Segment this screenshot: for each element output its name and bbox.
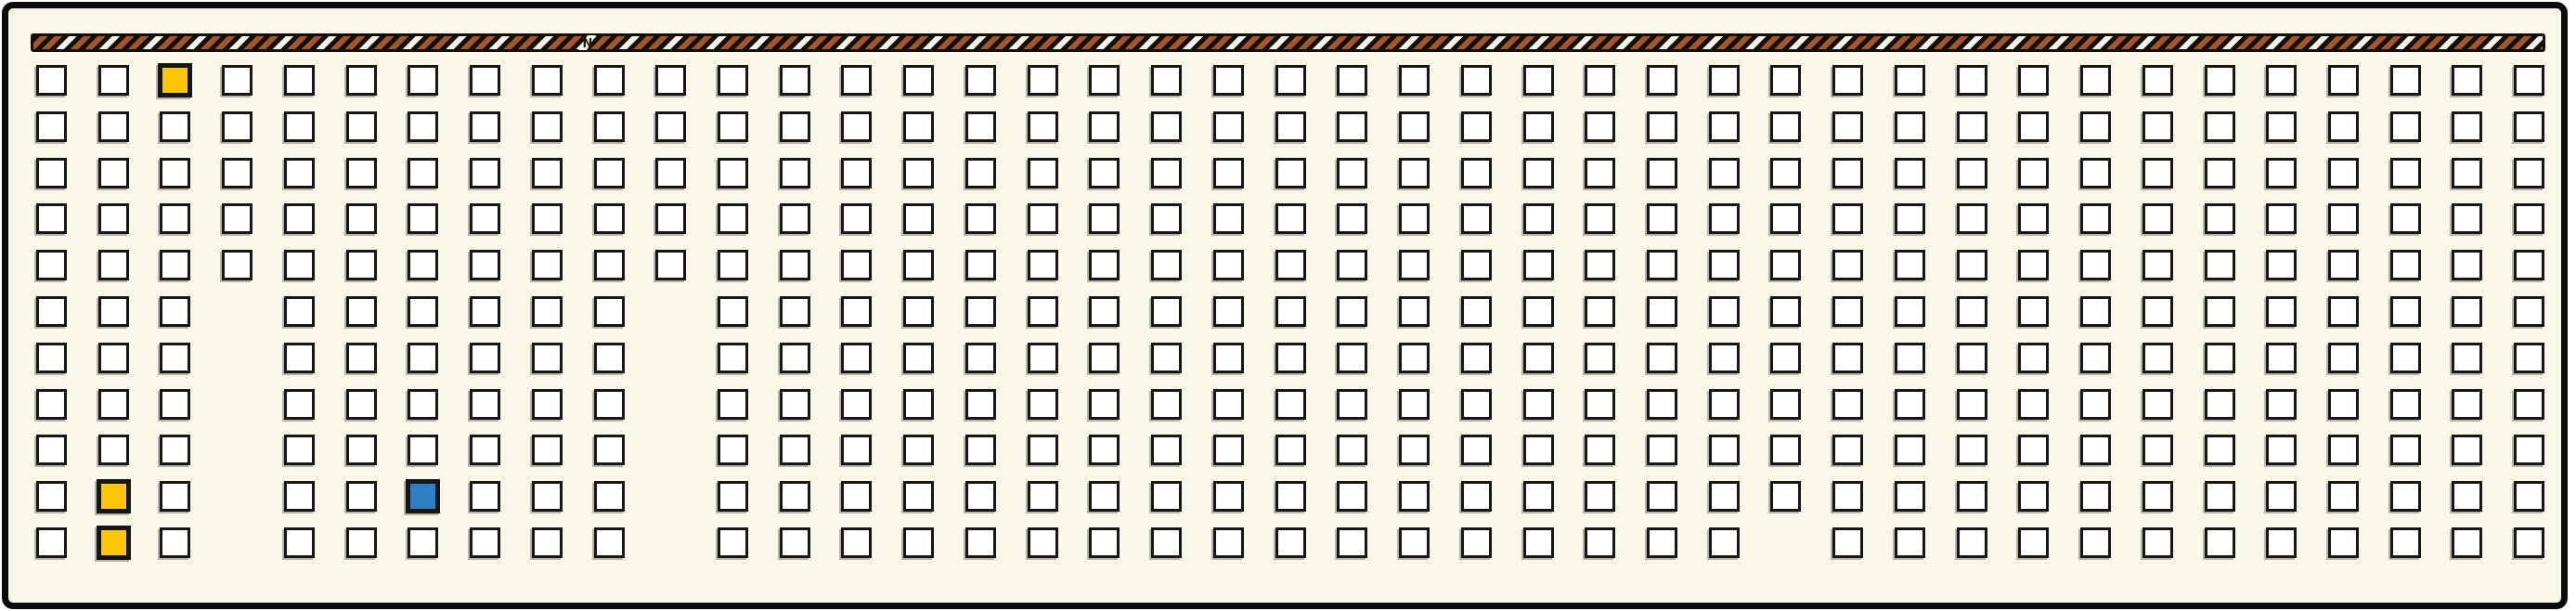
grid-cell[interactable]: [2514, 65, 2544, 96]
grid-cell[interactable]: [284, 111, 315, 142]
grid-cell[interactable]: [98, 203, 129, 234]
grid-cell[interactable]: [903, 296, 934, 327]
grid-cell[interactable]: [2514, 158, 2544, 188]
grid-cell[interactable]: [1647, 435, 1677, 465]
grid-cell[interactable]: [1647, 65, 1677, 96]
grid-cell[interactable]: [284, 65, 315, 96]
grid-cell[interactable]: [346, 250, 377, 280]
grid-cell[interactable]: [1151, 111, 1182, 142]
grid-cell[interactable]: [160, 296, 190, 327]
grid-cell[interactable]: [780, 111, 810, 142]
grid-cell[interactable]: [1399, 65, 1430, 96]
grid-cell[interactable]: [1957, 527, 1987, 558]
grid-cell[interactable]: [1709, 343, 1740, 373]
grid-cell[interactable]: [1647, 158, 1677, 188]
grid-cell[interactable]: [1770, 343, 1801, 373]
grid-cell[interactable]: [2452, 435, 2482, 465]
grid-cell[interactable]: [346, 389, 377, 420]
grid-cell[interactable]: [1832, 158, 1863, 188]
grid-cell[interactable]: [1337, 65, 1367, 96]
grid-cell[interactable]: [2514, 481, 2544, 512]
grid-cell[interactable]: [1151, 527, 1182, 558]
grid-cell[interactable]: [2080, 343, 2111, 373]
grid-cell[interactable]: [2266, 158, 2297, 188]
grid-cell[interactable]: [284, 343, 315, 373]
grid-cell[interactable]: [903, 527, 934, 558]
grid-cell[interactable]: [346, 343, 377, 373]
grid-cell[interactable]: [1647, 203, 1677, 234]
grid-cell[interactable]: [2328, 111, 2359, 142]
grid-cell[interactable]: [594, 481, 625, 512]
grid-cell[interactable]: [2080, 203, 2111, 234]
grid-cell[interactable]: [160, 481, 190, 512]
grid-cell[interactable]: [408, 343, 438, 373]
grid-cell[interactable]: [1337, 527, 1367, 558]
grid-cell[interactable]: [1709, 389, 1740, 420]
grid-cell[interactable]: [2514, 250, 2544, 280]
grid-cell[interactable]: [160, 389, 190, 420]
grid-cell[interactable]: [965, 481, 996, 512]
grid-cell[interactable]: [408, 250, 438, 280]
grid-cell[interactable]: [1151, 296, 1182, 327]
grid-cell[interactable]: [1770, 65, 1801, 96]
grid-cell[interactable]: [2018, 65, 2049, 96]
grid-cell-highlight-yellow[interactable]: [97, 526, 131, 560]
grid-cell[interactable]: [2514, 203, 2544, 234]
grid-cell[interactable]: [1895, 296, 1925, 327]
grid-cell[interactable]: [2080, 250, 2111, 280]
grid-cell[interactable]: [2452, 158, 2482, 188]
grid-cell[interactable]: [2142, 343, 2173, 373]
grid-cell[interactable]: [1957, 158, 1987, 188]
grid-cell[interactable]: [532, 435, 563, 465]
grid-cell[interactable]: [1461, 158, 1492, 188]
grid-cell[interactable]: [1151, 250, 1182, 280]
grid-cell[interactable]: [1585, 250, 1615, 280]
grid-cell[interactable]: [36, 527, 67, 558]
grid-cell-highlight-yellow[interactable]: [97, 479, 131, 513]
grid-cell[interactable]: [2142, 435, 2173, 465]
grid-cell[interactable]: [718, 389, 748, 420]
grid-cell[interactable]: [2018, 203, 2049, 234]
grid-cell[interactable]: [1895, 65, 1925, 96]
grid-cell[interactable]: [160, 203, 190, 234]
grid-cell[interactable]: [1275, 158, 1306, 188]
grid-cell[interactable]: [2390, 435, 2421, 465]
grid-cell[interactable]: [1089, 389, 1120, 420]
grid-cell[interactable]: [1895, 250, 1925, 280]
grid-cell[interactable]: [36, 389, 67, 420]
grid-cell[interactable]: [965, 203, 996, 234]
grid-cell[interactable]: [2328, 203, 2359, 234]
grid-cell[interactable]: [594, 158, 625, 188]
grid-cell[interactable]: [718, 481, 748, 512]
grid-cell[interactable]: [36, 203, 67, 234]
grid-cell[interactable]: [2142, 296, 2173, 327]
grid-cell[interactable]: [1337, 296, 1367, 327]
grid-cell[interactable]: [1151, 343, 1182, 373]
grid-cell[interactable]: [1461, 203, 1492, 234]
grid-cell[interactable]: [780, 343, 810, 373]
grid-cell[interactable]: [1647, 296, 1677, 327]
grid-cell[interactable]: [1523, 65, 1554, 96]
grid-cell[interactable]: [1461, 527, 1492, 558]
grid-cell[interactable]: [2328, 250, 2359, 280]
grid-cell[interactable]: [2452, 65, 2482, 96]
grid-cell[interactable]: [1028, 111, 1058, 142]
grid-cell[interactable]: [1089, 343, 1120, 373]
grid-cell[interactable]: [98, 65, 129, 96]
grid-cell[interactable]: [965, 389, 996, 420]
grid-cell[interactable]: [780, 527, 810, 558]
grid-cell[interactable]: [1213, 203, 1244, 234]
grid-cell[interactable]: [1028, 527, 1058, 558]
grid-cell[interactable]: [2328, 481, 2359, 512]
grid-cell[interactable]: [1832, 527, 1863, 558]
grid-cell[interactable]: [2142, 65, 2173, 96]
grid-cell[interactable]: [2205, 250, 2235, 280]
grid-cell[interactable]: [470, 203, 500, 234]
grid-cell[interactable]: [1957, 203, 1987, 234]
grid-cell[interactable]: [2514, 343, 2544, 373]
grid-cell[interactable]: [841, 527, 872, 558]
grid-cell[interactable]: [408, 158, 438, 188]
grid-cell[interactable]: [1770, 158, 1801, 188]
grid-cell[interactable]: [780, 296, 810, 327]
grid-cell[interactable]: [841, 343, 872, 373]
grid-cell[interactable]: [1832, 65, 1863, 96]
grid-cell[interactable]: [1213, 389, 1244, 420]
grid-cell[interactable]: [2390, 250, 2421, 280]
grid-cell[interactable]: [1089, 296, 1120, 327]
grid-cell[interactable]: [2080, 389, 2111, 420]
grid-cell[interactable]: [1213, 296, 1244, 327]
grid-cell[interactable]: [1399, 296, 1430, 327]
grid-cell[interactable]: [2266, 111, 2297, 142]
grid-cell[interactable]: [36, 481, 67, 512]
grid-cell[interactable]: [1585, 527, 1615, 558]
grid-cell[interactable]: [1770, 111, 1801, 142]
grid-cell[interactable]: [2328, 158, 2359, 188]
grid-cell[interactable]: [1770, 435, 1801, 465]
grid-cell[interactable]: [532, 65, 563, 96]
grid-cell[interactable]: [160, 435, 190, 465]
grid-cell[interactable]: [2080, 435, 2111, 465]
grid-cell-highlight-blue[interactable]: [406, 479, 440, 513]
grid-cell[interactable]: [532, 296, 563, 327]
grid-cell[interactable]: [2266, 296, 2297, 327]
grid-cell[interactable]: [1151, 65, 1182, 96]
grid-cell[interactable]: [1895, 389, 1925, 420]
grid-cell[interactable]: [2205, 296, 2235, 327]
grid-cell[interactable]: [1275, 527, 1306, 558]
grid-cell[interactable]: [1399, 158, 1430, 188]
grid-cell[interactable]: [470, 481, 500, 512]
grid-cell[interactable]: [346, 65, 377, 96]
grid-cell[interactable]: [594, 65, 625, 96]
grid-cell[interactable]: [1275, 343, 1306, 373]
grid-cell[interactable]: [98, 435, 129, 465]
grid-cell[interactable]: [1770, 296, 1801, 327]
grid-cell[interactable]: [903, 203, 934, 234]
grid-cell[interactable]: [1709, 435, 1740, 465]
grid-cell[interactable]: [1832, 435, 1863, 465]
grid-cell[interactable]: [780, 481, 810, 512]
grid-cell[interactable]: [160, 343, 190, 373]
grid-cell[interactable]: [2452, 296, 2482, 327]
grid-cell[interactable]: [2266, 389, 2297, 420]
grid-cell[interactable]: [2390, 111, 2421, 142]
grid-cell[interactable]: [2328, 435, 2359, 465]
grid-cell[interactable]: [284, 481, 315, 512]
grid-cell[interactable]: [1832, 250, 1863, 280]
grid-cell[interactable]: [1089, 65, 1120, 96]
grid-cell[interactable]: [2390, 343, 2421, 373]
grid-cell[interactable]: [1399, 527, 1430, 558]
grid-cell[interactable]: [532, 111, 563, 142]
grid-cell[interactable]: [903, 111, 934, 142]
grid-cell[interactable]: [36, 435, 67, 465]
grid-cell[interactable]: [1399, 435, 1430, 465]
grid-cell[interactable]: [780, 250, 810, 280]
grid-cell[interactable]: [1957, 65, 1987, 96]
grid-cell[interactable]: [2390, 158, 2421, 188]
grid-cell[interactable]: [965, 158, 996, 188]
grid-cell[interactable]: [841, 203, 872, 234]
grid-cell[interactable]: [1523, 481, 1554, 512]
grid-cell[interactable]: [841, 158, 872, 188]
grid-cell[interactable]: [408, 389, 438, 420]
grid-cell[interactable]: [2205, 389, 2235, 420]
grid-cell[interactable]: [346, 203, 377, 234]
grid-cell[interactable]: [2142, 111, 2173, 142]
grid-cell[interactable]: [2205, 111, 2235, 142]
grid-cell[interactable]: [1895, 343, 1925, 373]
grid-cell[interactable]: [780, 389, 810, 420]
grid-cell[interactable]: [1213, 158, 1244, 188]
grid-cell[interactable]: [2452, 111, 2482, 142]
grid-cell[interactable]: [160, 527, 190, 558]
grid-cell[interactable]: [284, 296, 315, 327]
grid-cell[interactable]: [903, 435, 934, 465]
grid-cell[interactable]: [1213, 65, 1244, 96]
grid-cell[interactable]: [718, 343, 748, 373]
grid-cell[interactable]: [2080, 481, 2111, 512]
grid-cell[interactable]: [965, 435, 996, 465]
grid-cell[interactable]: [1957, 389, 1987, 420]
grid-cell[interactable]: [2266, 250, 2297, 280]
grid-cell[interactable]: [1647, 389, 1677, 420]
grid-cell[interactable]: [1523, 158, 1554, 188]
grid-cell[interactable]: [222, 250, 252, 280]
grid-cell[interactable]: [470, 527, 500, 558]
grid-cell[interactable]: [1585, 65, 1615, 96]
grid-cell[interactable]: [2018, 343, 2049, 373]
grid-cell[interactable]: [2266, 343, 2297, 373]
grid-cell[interactable]: [284, 435, 315, 465]
grid-cell[interactable]: [1213, 527, 1244, 558]
grid-cell[interactable]: [2080, 527, 2111, 558]
grid-cell[interactable]: [1461, 343, 1492, 373]
grid-cell[interactable]: [2452, 527, 2482, 558]
grid-cell[interactable]: [1028, 158, 1058, 188]
grid-cell[interactable]: [1957, 250, 1987, 280]
grid-cell[interactable]: [1275, 389, 1306, 420]
grid-cell[interactable]: [2390, 203, 2421, 234]
grid-cell[interactable]: [2018, 527, 2049, 558]
grid-cell[interactable]: [841, 250, 872, 280]
grid-cell[interactable]: [2205, 435, 2235, 465]
grid-cell[interactable]: [2514, 389, 2544, 420]
grid-cell[interactable]: [1337, 250, 1367, 280]
grid-cell[interactable]: [2142, 481, 2173, 512]
grid-cell[interactable]: [470, 65, 500, 96]
grid-cell[interactable]: [1895, 203, 1925, 234]
grid-cell[interactable]: [1028, 389, 1058, 420]
grid-cell[interactable]: [1895, 111, 1925, 142]
grid-cell[interactable]: [1832, 481, 1863, 512]
grid-cell[interactable]: [903, 481, 934, 512]
grid-cell[interactable]: [222, 65, 252, 96]
grid-cell[interactable]: [1957, 343, 1987, 373]
grid-cell[interactable]: [1709, 527, 1740, 558]
grid-cell[interactable]: [1832, 343, 1863, 373]
grid-cell[interactable]: [1028, 203, 1058, 234]
grid-cell[interactable]: [594, 203, 625, 234]
grid-cell[interactable]: [2018, 435, 2049, 465]
grid-cell[interactable]: [2142, 250, 2173, 280]
grid-cell[interactable]: [222, 203, 252, 234]
grid-cell[interactable]: [2390, 389, 2421, 420]
grid-cell[interactable]: [2514, 111, 2544, 142]
grid-cell[interactable]: [532, 481, 563, 512]
grid-cell[interactable]: [2205, 481, 2235, 512]
grid-cell[interactable]: [1275, 250, 1306, 280]
grid-cell[interactable]: [1461, 435, 1492, 465]
grid-cell[interactable]: [1461, 250, 1492, 280]
grid-cell[interactable]: [841, 481, 872, 512]
grid-cell[interactable]: [1957, 481, 1987, 512]
grid-cell[interactable]: [1275, 65, 1306, 96]
grid-cell[interactable]: [718, 435, 748, 465]
grid-cell[interactable]: [1461, 389, 1492, 420]
grid-cell[interactable]: [36, 343, 67, 373]
grid-cell[interactable]: [594, 250, 625, 280]
grid-cell[interactable]: [1028, 250, 1058, 280]
grid-cell[interactable]: [36, 158, 67, 188]
grid-cell[interactable]: [718, 296, 748, 327]
grid-cell[interactable]: [1523, 296, 1554, 327]
grid-cell[interactable]: [346, 481, 377, 512]
grid-cell[interactable]: [408, 296, 438, 327]
grid-cell[interactable]: [1585, 389, 1615, 420]
grid-cell[interactable]: [98, 389, 129, 420]
grid-cell[interactable]: [1213, 481, 1244, 512]
grid-cell[interactable]: [903, 389, 934, 420]
grid-cell[interactable]: [1957, 111, 1987, 142]
grid-cell[interactable]: [965, 527, 996, 558]
grid-cell[interactable]: [2080, 65, 2111, 96]
grid-cell[interactable]: [1028, 343, 1058, 373]
grid-cell[interactable]: [780, 158, 810, 188]
grid-cell[interactable]: [903, 65, 934, 96]
grid-cell[interactable]: [2080, 296, 2111, 327]
grid-cell[interactable]: [1770, 203, 1801, 234]
grid-cell[interactable]: [2328, 343, 2359, 373]
grid-cell[interactable]: [1089, 435, 1120, 465]
grid-cell[interactable]: [1028, 296, 1058, 327]
grid-cell[interactable]: [1275, 481, 1306, 512]
grid-cell[interactable]: [532, 389, 563, 420]
grid-cell[interactable]: [470, 250, 500, 280]
grid-cell[interactable]: [1709, 111, 1740, 142]
grid-cell[interactable]: [2390, 527, 2421, 558]
grid-cell[interactable]: [1089, 481, 1120, 512]
grid-cell[interactable]: [1585, 158, 1615, 188]
grid-cell[interactable]: [2266, 481, 2297, 512]
grid-cell[interactable]: [2205, 527, 2235, 558]
grid-cell[interactable]: [2142, 203, 2173, 234]
grid-cell[interactable]: [2018, 389, 2049, 420]
grid-cell[interactable]: [594, 435, 625, 465]
grid-cell[interactable]: [965, 65, 996, 96]
grid-cell[interactable]: [36, 65, 67, 96]
grid-cell[interactable]: [1151, 389, 1182, 420]
grid-cell[interactable]: [470, 343, 500, 373]
grid-cell[interactable]: [98, 296, 129, 327]
grid-cell[interactable]: [284, 389, 315, 420]
grid-cell[interactable]: [346, 435, 377, 465]
grid-cell[interactable]: [965, 296, 996, 327]
grid-cell[interactable]: [1151, 158, 1182, 188]
grid-cell[interactable]: [2452, 389, 2482, 420]
grid-cell[interactable]: [1585, 481, 1615, 512]
grid-cell[interactable]: [780, 203, 810, 234]
grid-cell[interactable]: [841, 389, 872, 420]
grid-cell[interactable]: [718, 527, 748, 558]
grid-cell[interactable]: [1089, 158, 1120, 188]
grid-cell[interactable]: [98, 158, 129, 188]
grid-cell[interactable]: [2205, 65, 2235, 96]
grid-cell[interactable]: [470, 111, 500, 142]
grid-cell[interactable]: [594, 111, 625, 142]
grid-cell[interactable]: [1028, 65, 1058, 96]
grid-cell[interactable]: [1770, 481, 1801, 512]
grid-cell[interactable]: [655, 158, 686, 188]
grid-cell[interactable]: [1213, 111, 1244, 142]
grid-cell[interactable]: [1151, 435, 1182, 465]
grid-cell[interactable]: [1337, 389, 1367, 420]
grid-cell[interactable]: [594, 343, 625, 373]
grid-cell[interactable]: [284, 527, 315, 558]
grid-cell[interactable]: [2205, 343, 2235, 373]
grid-cell[interactable]: [160, 250, 190, 280]
grid-cell[interactable]: [2018, 250, 2049, 280]
grid-cell[interactable]: [1337, 481, 1367, 512]
grid-cell[interactable]: [1709, 203, 1740, 234]
grid-cell[interactable]: [284, 250, 315, 280]
grid-cell[interactable]: [1275, 203, 1306, 234]
grid-cell[interactable]: [284, 203, 315, 234]
grid-cell[interactable]: [841, 111, 872, 142]
grid-cell[interactable]: [408, 65, 438, 96]
grid-cell[interactable]: [780, 65, 810, 96]
grid-cell[interactable]: [903, 158, 934, 188]
grid-cell[interactable]: [1028, 435, 1058, 465]
grid-cell[interactable]: [594, 389, 625, 420]
grid-cell[interactable]: [1151, 481, 1182, 512]
grid-cell[interactable]: [1957, 296, 1987, 327]
